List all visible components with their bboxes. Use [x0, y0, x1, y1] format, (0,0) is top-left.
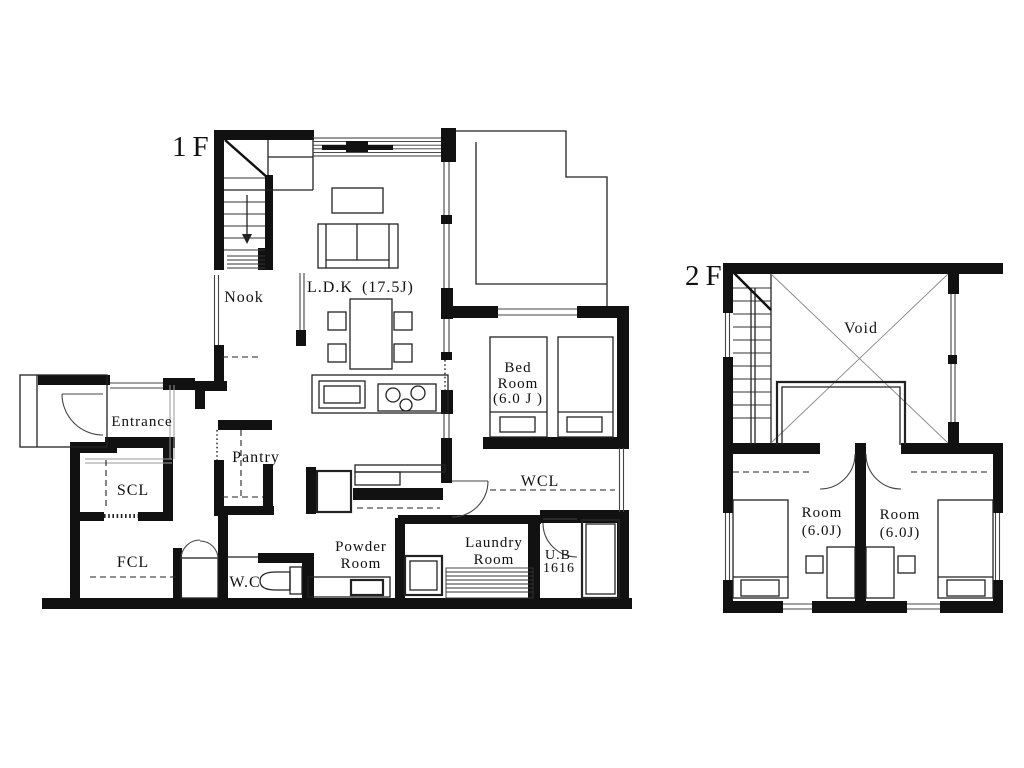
dining-chair — [328, 344, 346, 362]
drying-area — [446, 568, 533, 598]
walls-2f — [723, 263, 1003, 613]
label-laundry-2: Room — [474, 552, 515, 568]
label-bedroom-2: Room — [498, 376, 539, 392]
floor-plan-page: 1F Nook L.D.K (17.5J) Entrance SCL FCL P… — [0, 0, 1024, 768]
label-ldk: L.D.K — [307, 279, 353, 296]
tv-wall — [313, 138, 441, 156]
label-ub-size: 1616 — [543, 561, 575, 576]
vanity — [308, 577, 390, 597]
labels-2f: 2F Void Room (6.0J) Room (6.0J) — [685, 260, 920, 541]
dining-table — [350, 299, 392, 369]
chair — [806, 556, 823, 573]
label-wcl: WCL — [521, 473, 560, 490]
bed — [558, 337, 613, 437]
void-railing — [777, 382, 905, 445]
label-room-left-2: (6.0J) — [802, 523, 843, 539]
label-laundry-1: Laundry — [465, 535, 523, 551]
label-fcl: FCL — [117, 554, 149, 571]
wcl-door — [452, 481, 488, 517]
floor-plan-drawing: 1F Nook L.D.K (17.5J) Entrance SCL FCL P… — [0, 0, 1024, 768]
dining-set — [328, 299, 412, 369]
back-counter — [355, 465, 445, 485]
label-bedroom-1: Bed — [504, 360, 531, 376]
label-floor-1f: 1F — [172, 131, 215, 163]
dining-chair — [394, 312, 412, 330]
desk — [866, 547, 894, 598]
void-area — [771, 274, 948, 445]
label-entrance: Entrance — [111, 414, 172, 430]
staircase-2f — [733, 272, 771, 445]
refrigerator — [317, 471, 351, 512]
hall-closet — [181, 540, 218, 598]
label-pantry: Pantry — [232, 449, 280, 466]
chair — [898, 556, 915, 573]
bed — [733, 500, 788, 598]
desk — [827, 547, 855, 598]
tv-center — [346, 141, 368, 152]
dining-chair — [328, 312, 346, 330]
floor-2f: 2F Void Room (6.0J) Room (6.0J) — [685, 260, 1003, 613]
kitchen-sink — [319, 381, 365, 408]
label-nook: Nook — [224, 289, 264, 306]
label-void: Void — [844, 320, 878, 337]
label-room-right-2: (6.0J) — [880, 525, 921, 541]
staircase-1f — [224, 136, 313, 270]
label-powder-2: Room — [341, 556, 382, 572]
deck-outline — [456, 131, 607, 306]
label-room-left-1: Room — [802, 505, 843, 521]
dining-chair — [394, 344, 412, 362]
bed — [938, 500, 993, 598]
label-wc: W.C — [229, 574, 260, 591]
walls-1f — [38, 128, 632, 609]
label-ldk-size: (17.5J) — [362, 279, 414, 296]
label-floor-2f: 2F — [685, 260, 728, 292]
label-room-right-1: Room — [880, 507, 921, 523]
floor-1f: 1F Nook L.D.K (17.5J) Entrance SCL FCL P… — [20, 128, 632, 609]
cooktop — [378, 384, 436, 411]
entrance-porch — [20, 375, 107, 447]
living-table — [332, 188, 383, 213]
label-bedroom-3: (6.0 J ) — [493, 391, 543, 407]
sofa — [318, 224, 398, 268]
front-door — [62, 394, 103, 435]
label-scl: SCL — [117, 482, 149, 499]
label-powder-1: Powder — [335, 539, 387, 555]
